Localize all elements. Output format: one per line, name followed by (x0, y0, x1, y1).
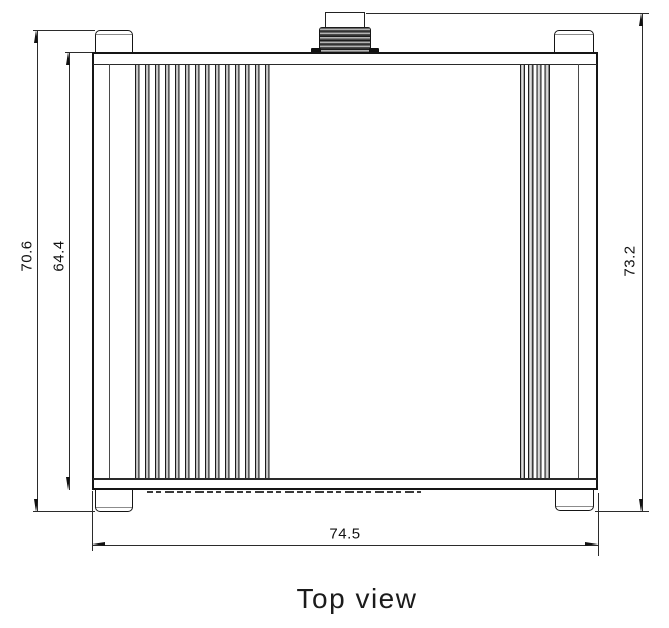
dimension-line-overall-width (92, 545, 598, 546)
technical-drawing-top-view: 70.6 64.4 73.2 74.5 Top view (0, 0, 669, 628)
mounting-foot-top-right (554, 30, 594, 53)
arrowhead-icon (34, 30, 38, 43)
arrowhead-icon (92, 542, 105, 546)
dimension-line-body-height (69, 52, 70, 490)
dimension-line-overall-height (37, 30, 38, 512)
dimension-label-body-height: 64.4 (51, 240, 68, 271)
arrowhead-icon (639, 13, 643, 26)
mounting-foot-top-left (95, 30, 133, 53)
dimension-label-overall-height: 70.6 (19, 240, 36, 271)
arrowhead-icon (639, 499, 643, 512)
arrowhead-icon (34, 499, 38, 512)
body-inner-edge-right (578, 64, 579, 478)
extension-line-width-right (598, 493, 599, 556)
heatsink-fins-right (520, 65, 553, 478)
bottom-serration-line (147, 491, 421, 493)
extension-line-top-left-outer (33, 30, 95, 31)
mounting-foot-bottom-right (555, 489, 594, 511)
mounting-foot-bottom-left (95, 489, 133, 512)
heatsink-fins-left (135, 65, 275, 478)
dimension-label-height-with-connector: 73.2 (622, 245, 639, 276)
body-bottom-rim-line (93, 478, 597, 480)
arrowhead-icon (66, 52, 70, 65)
arrowhead-icon (585, 542, 598, 546)
body-inner-edge-left (109, 64, 110, 478)
connector-threads-icon (319, 27, 371, 53)
dimension-label-overall-width: 74.5 (329, 526, 360, 543)
arrowhead-icon (66, 477, 70, 490)
dimension-line-height-with-connector (642, 13, 643, 512)
extension-line-bottom-left (33, 511, 95, 512)
connector-cap (325, 12, 365, 28)
view-caption: Top view (297, 583, 418, 615)
extension-line-connector-top (366, 13, 649, 14)
